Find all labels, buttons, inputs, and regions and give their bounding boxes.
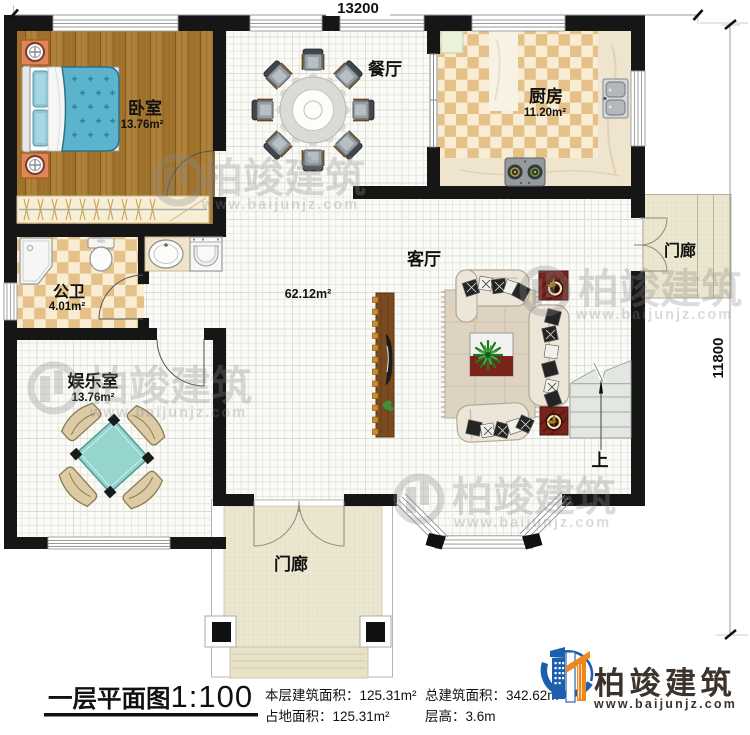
svg-text:www.baijunjz.com: www.baijunjz.com [593,697,737,711]
svg-text:门廊: 门廊 [664,241,696,260]
svg-text:13.76m²: 13.76m² [121,119,164,131]
svg-text:柏竣建筑: 柏竣建筑 [88,363,252,409]
svg-text:层高：3.6m: 层高：3.6m [425,708,496,724]
svg-text:餐厅: 餐厅 [368,59,402,79]
svg-text:柏竣建筑: 柏竣建筑 [594,666,736,701]
svg-text:www.baijunjz.com: www.baijunjz.com [575,307,733,323]
svg-text:柏竣建筑: 柏竣建筑 [578,266,742,312]
svg-text:柏竣建筑: 柏竣建筑 [202,155,366,201]
svg-text:总建筑面积：342.62m²: 总建筑面积：342.62m² [425,688,564,703]
svg-text:62.12m²: 62.12m² [285,287,332,301]
svg-text:公卫: 公卫 [53,283,85,301]
svg-text:4.01m²: 4.01m² [49,301,86,313]
svg-text:13200: 13200 [337,0,379,17]
svg-text:门廊: 门廊 [274,554,308,574]
svg-text:11.20m²: 11.20m² [524,107,566,119]
svg-text:占地面积：125.31m²: 占地面积：125.31m² [265,709,390,724]
svg-text:厨房: 厨房 [529,86,563,106]
svg-text:www.baijunjz.com: www.baijunjz.com [453,515,611,531]
svg-text:www.baijunjz.com: www.baijunjz.com [89,405,247,421]
svg-text:上: 上 [592,451,609,470]
svg-text:卧室: 卧室 [128,98,162,118]
svg-text:www.baijunjz.com: www.baijunjz.com [201,197,359,213]
svg-text:客厅: 客厅 [406,249,441,269]
svg-text:11800: 11800 [710,338,727,379]
svg-text:本层建筑面积：125.31m²: 本层建筑面积：125.31m² [265,688,417,703]
svg-text:柏竣建筑: 柏竣建筑 [452,474,616,520]
